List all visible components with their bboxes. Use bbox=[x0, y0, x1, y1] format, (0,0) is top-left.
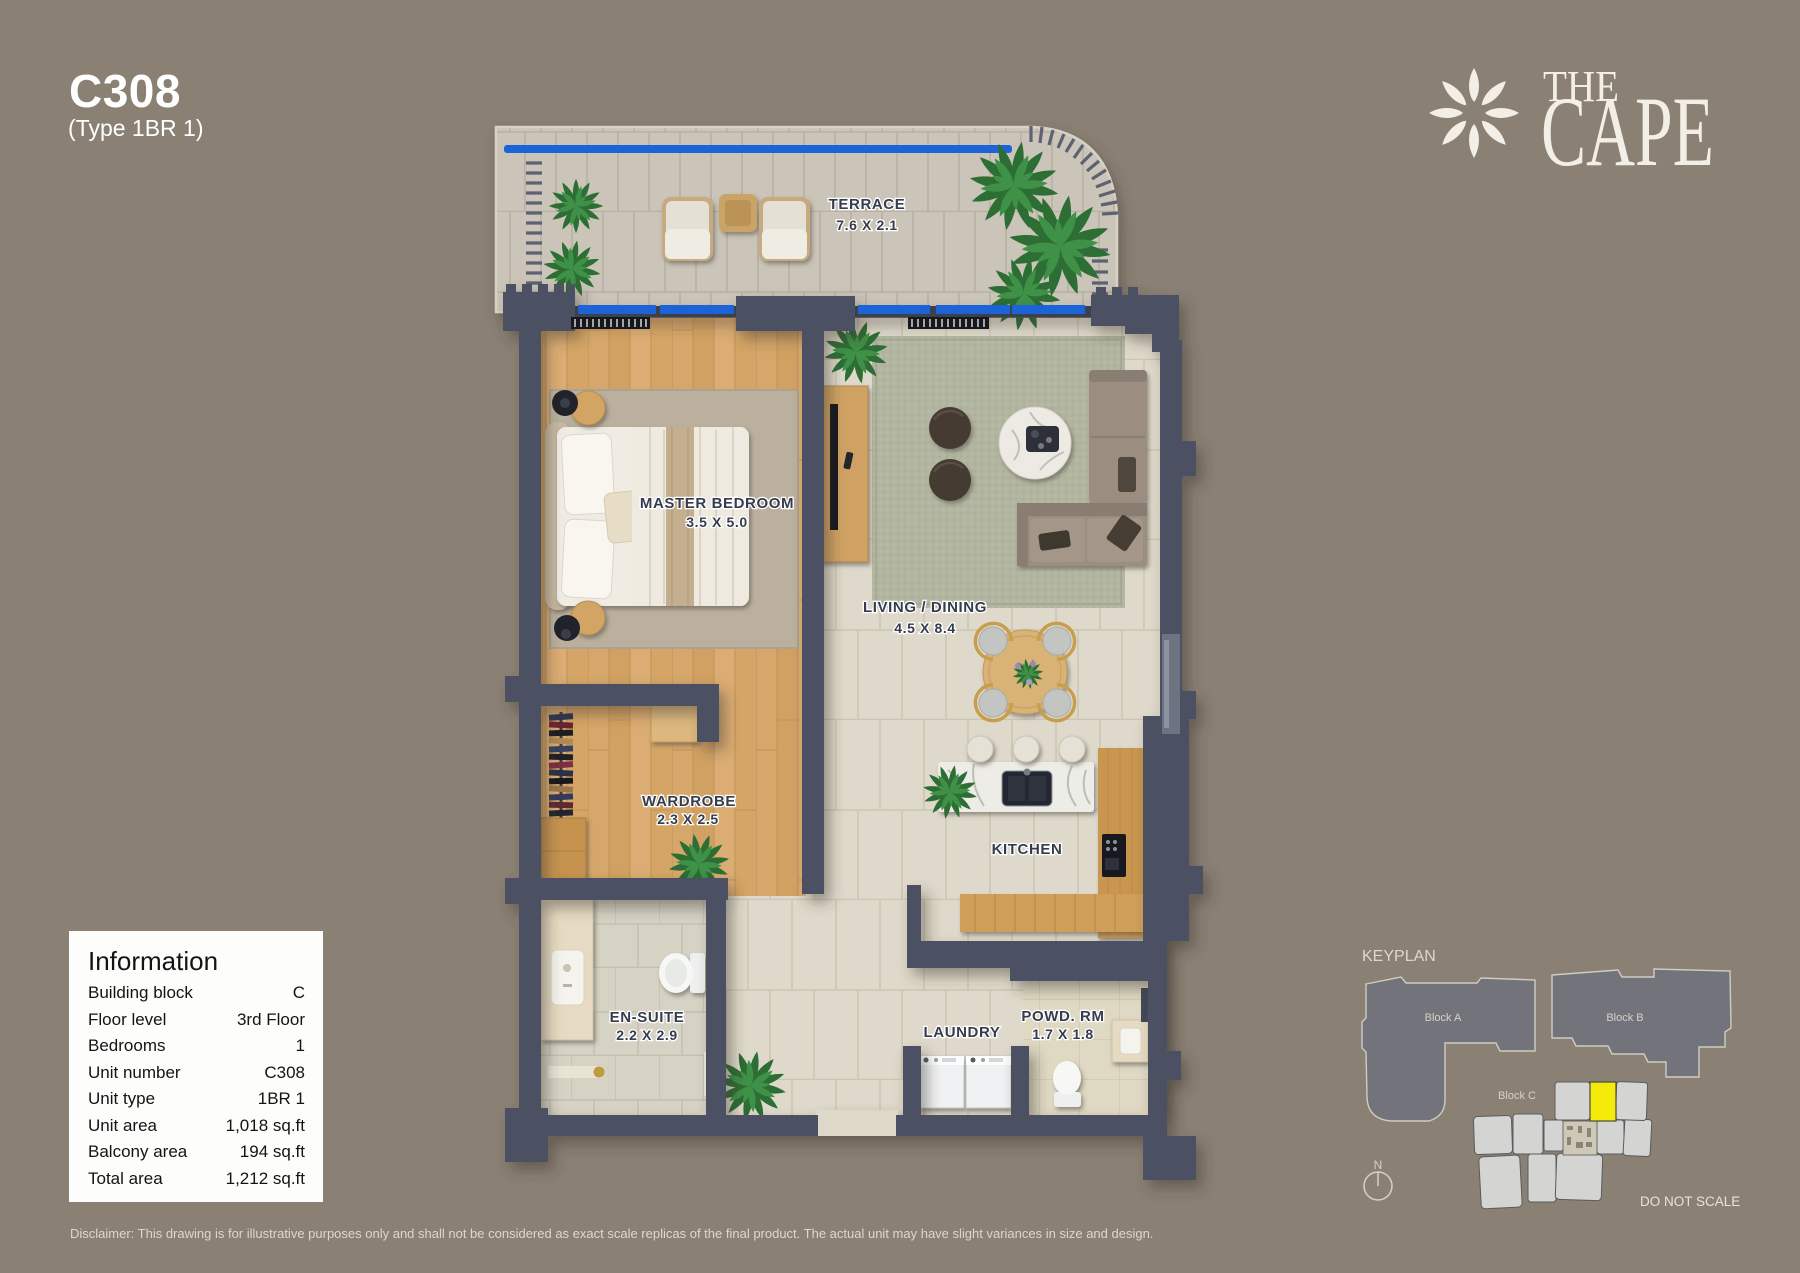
svg-text:(Type 1BR 1): (Type 1BR 1) bbox=[68, 115, 204, 141]
svg-text:1.7 X 1.8: 1.7 X 1.8 bbox=[1032, 1026, 1093, 1042]
svg-text:Unit number: Unit number bbox=[88, 1063, 181, 1082]
svg-text:CAPE: CAPE bbox=[1541, 76, 1714, 187]
svg-text:KEYPLAN: KEYPLAN bbox=[1362, 948, 1436, 965]
svg-text:TERRACE: TERRACE bbox=[829, 196, 906, 213]
svg-text:Unit type: Unit type bbox=[88, 1089, 155, 1108]
svg-text:Bedrooms: Bedrooms bbox=[88, 1036, 165, 1055]
svg-text:MASTER BEDROOM: MASTER BEDROOM bbox=[640, 495, 794, 512]
svg-text:194 sq.ft: 194 sq.ft bbox=[240, 1142, 305, 1161]
svg-text:Building block: Building block bbox=[88, 983, 193, 1002]
svg-text:2.2 X 2.9: 2.2 X 2.9 bbox=[616, 1027, 677, 1043]
svg-text:DO NOT SCALE: DO NOT SCALE bbox=[1640, 1194, 1740, 1209]
svg-text:1,212 sq.ft: 1,212 sq.ft bbox=[226, 1169, 306, 1188]
svg-text:Information: Information bbox=[88, 946, 218, 976]
svg-text:LAUNDRY: LAUNDRY bbox=[924, 1024, 1001, 1041]
svg-text:LIVING / DINING: LIVING / DINING bbox=[863, 599, 987, 616]
svg-text:Block C: Block C bbox=[1498, 1090, 1536, 1102]
svg-text:C308: C308 bbox=[69, 65, 181, 117]
svg-text:Balcony area: Balcony area bbox=[88, 1142, 188, 1161]
svg-text:N: N bbox=[1374, 1158, 1383, 1172]
svg-text:1: 1 bbox=[296, 1036, 305, 1055]
svg-text:3rd Floor: 3rd Floor bbox=[237, 1010, 305, 1029]
svg-text:4.5 X 8.4: 4.5 X 8.4 bbox=[894, 620, 955, 636]
svg-text:C: C bbox=[293, 983, 305, 1002]
svg-text:2.3 X 2.5: 2.3 X 2.5 bbox=[657, 811, 718, 827]
svg-text:C308: C308 bbox=[264, 1063, 305, 1082]
svg-text:Floor level: Floor level bbox=[88, 1010, 166, 1029]
svg-text:1,018 sq.ft: 1,018 sq.ft bbox=[226, 1116, 306, 1135]
svg-text:Disclaimer: This drawing is fo: Disclaimer: This drawing is for illustra… bbox=[70, 1226, 1153, 1241]
svg-text:7.6 X 2.1: 7.6 X 2.1 bbox=[836, 217, 897, 233]
svg-text:Block B: Block B bbox=[1606, 1012, 1643, 1024]
svg-text:WARDROBE: WARDROBE bbox=[642, 793, 736, 810]
svg-text:1BR 1: 1BR 1 bbox=[258, 1089, 305, 1108]
svg-text:Block A: Block A bbox=[1425, 1012, 1462, 1024]
svg-text:KITCHEN: KITCHEN bbox=[992, 841, 1063, 858]
svg-text:3.5 X 5.0: 3.5 X 5.0 bbox=[686, 514, 747, 530]
svg-text:Unit area: Unit area bbox=[88, 1116, 158, 1135]
svg-text:POWD. RM: POWD. RM bbox=[1021, 1008, 1104, 1025]
svg-text:Total area: Total area bbox=[88, 1169, 163, 1188]
svg-text:EN-SUITE: EN-SUITE bbox=[610, 1009, 685, 1026]
